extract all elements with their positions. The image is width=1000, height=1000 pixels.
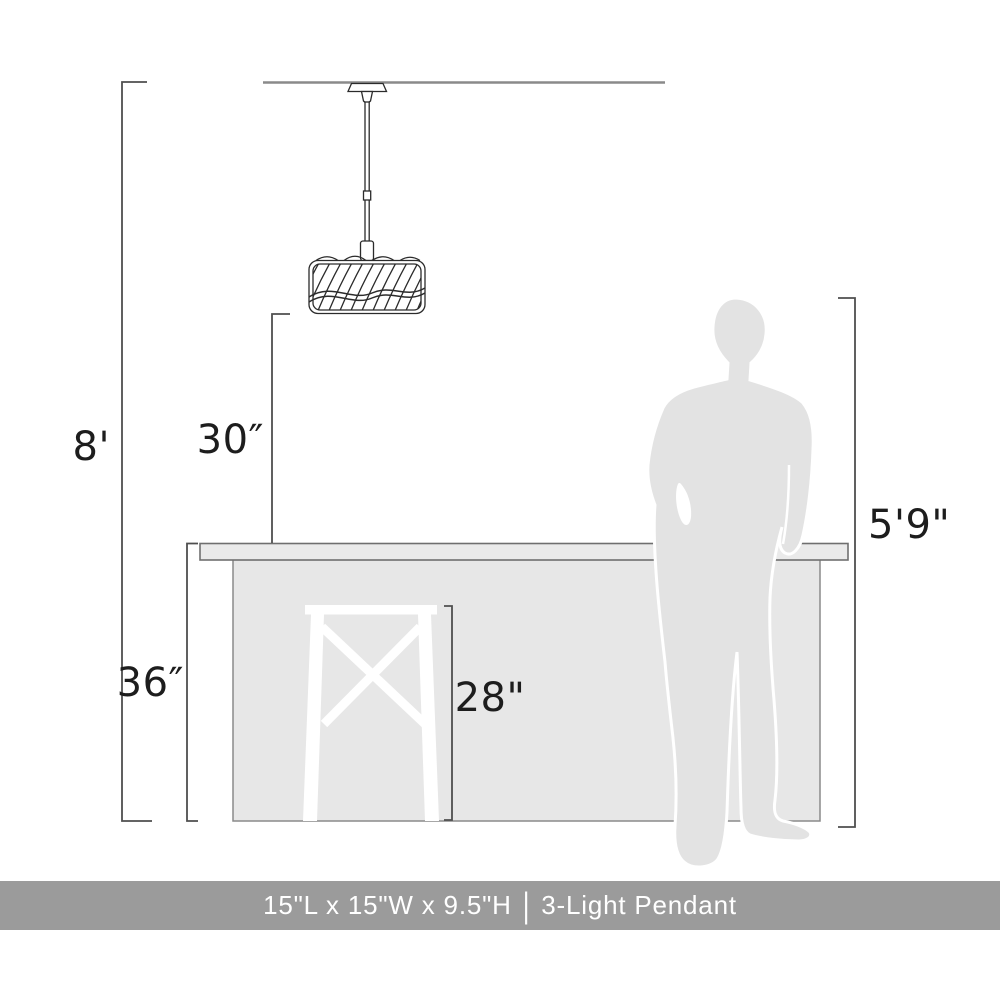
pendant-canopy bbox=[348, 84, 387, 92]
dim-bracket-ceiling-height bbox=[122, 82, 152, 821]
pendant-drum-shade bbox=[295, 256, 452, 313]
pendant-rod-joint bbox=[364, 191, 371, 200]
caption-product-name: 3-Light Pendant bbox=[541, 890, 737, 921]
pendant-downrod bbox=[365, 102, 369, 242]
diagram-scene: 8' 30″ 36″ 28" 5'9" bbox=[0, 0, 1000, 1000]
dim-bracket-person-height bbox=[838, 298, 855, 827]
dim-label-counter-height: 36″ bbox=[117, 660, 184, 706]
dim-label-pendant-to-counter: 30″ bbox=[197, 417, 264, 463]
pendant-light bbox=[295, 84, 452, 314]
caption-product-size: 15"L x 15"W x 9.5"H bbox=[263, 890, 512, 921]
caption-bar: 15"L x 15"W x 9.5"H | 3-Light Pendant bbox=[0, 881, 1000, 930]
dim-label-stool-height: 28" bbox=[455, 675, 526, 721]
stool-seat bbox=[305, 605, 437, 615]
dim-label-person-height: 5'9" bbox=[868, 502, 950, 548]
pendant-collar bbox=[362, 92, 373, 103]
pendant-size-diagram: 8' 30″ 36″ 28" 5'9" 15"L x 15"W x 9.5"H … bbox=[0, 0, 1000, 1000]
caption-divider: | bbox=[523, 885, 531, 927]
dim-line-pendant-to-counter bbox=[272, 314, 290, 543]
dim-bracket-counter-height bbox=[187, 544, 198, 822]
dim-label-ceiling-height: 8' bbox=[73, 424, 110, 470]
